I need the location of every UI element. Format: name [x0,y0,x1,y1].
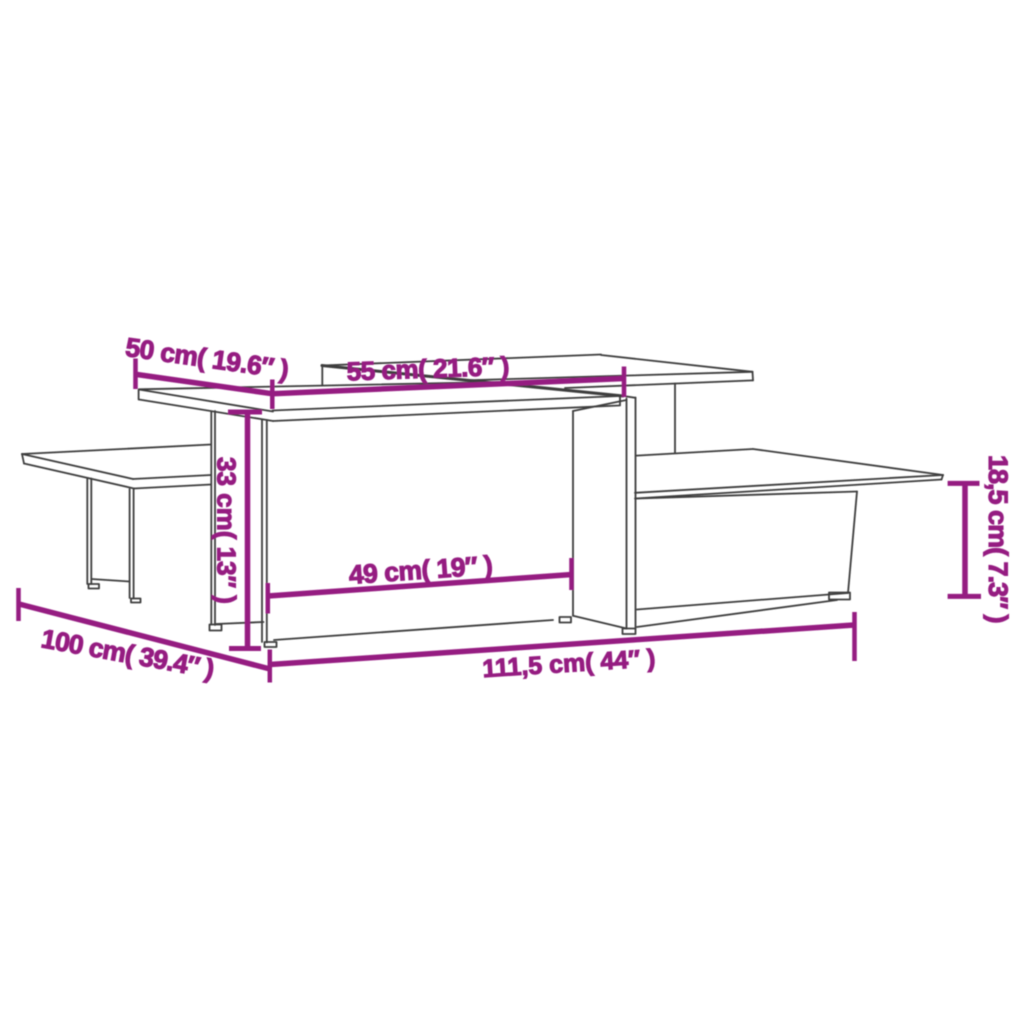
svg-text:55 cm( 21.6″ ): 55 cm( 21.6″ ) [346,351,509,387]
svg-text:33 cm( 13″ ): 33 cm( 13″ ) [212,457,242,604]
svg-text:18,5 cm( 7.3″ ): 18,5 cm( 7.3″ ) [983,455,1013,623]
